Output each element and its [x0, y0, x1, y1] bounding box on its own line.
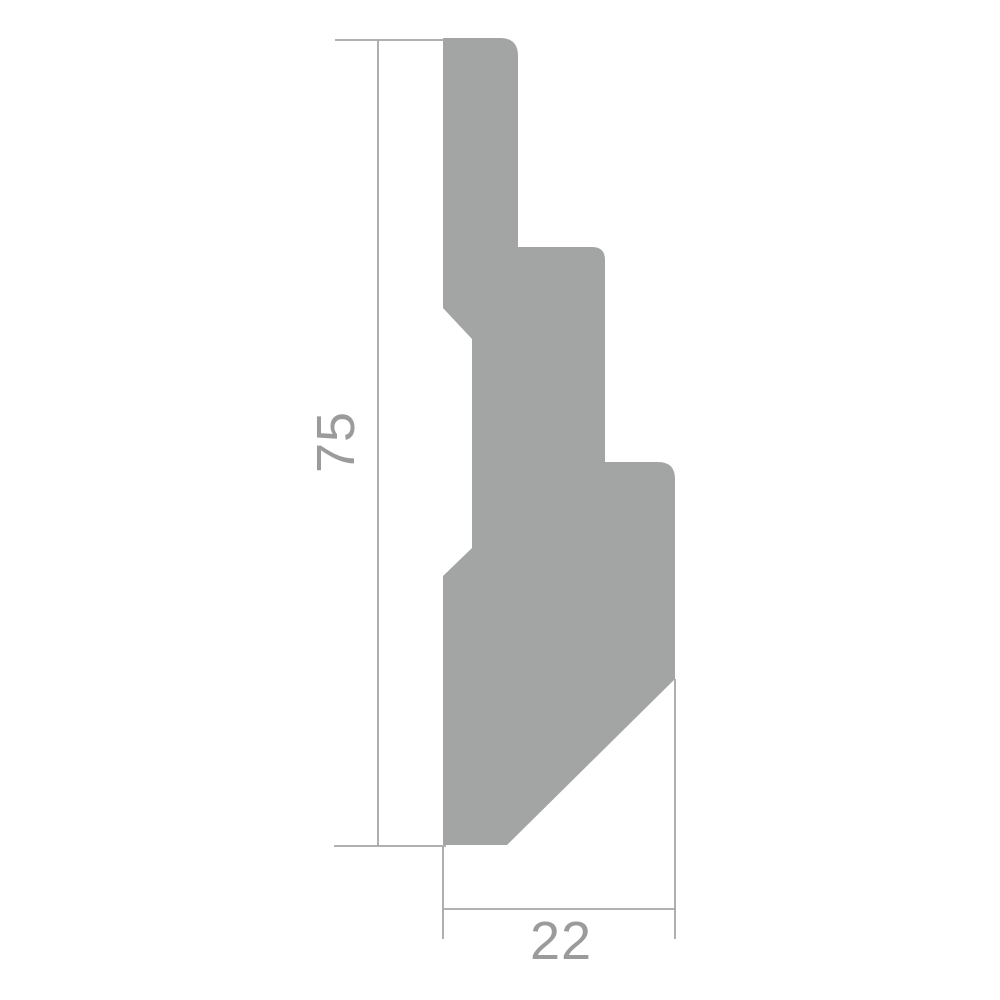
- profile-diagram: 75 22: [0, 0, 1000, 1000]
- drawing-canvas: 75 22: [0, 0, 1000, 1000]
- profile-shape: [443, 38, 675, 845]
- height-dimension-label: 75: [306, 411, 366, 473]
- width-dimension-label: 22: [530, 911, 592, 971]
